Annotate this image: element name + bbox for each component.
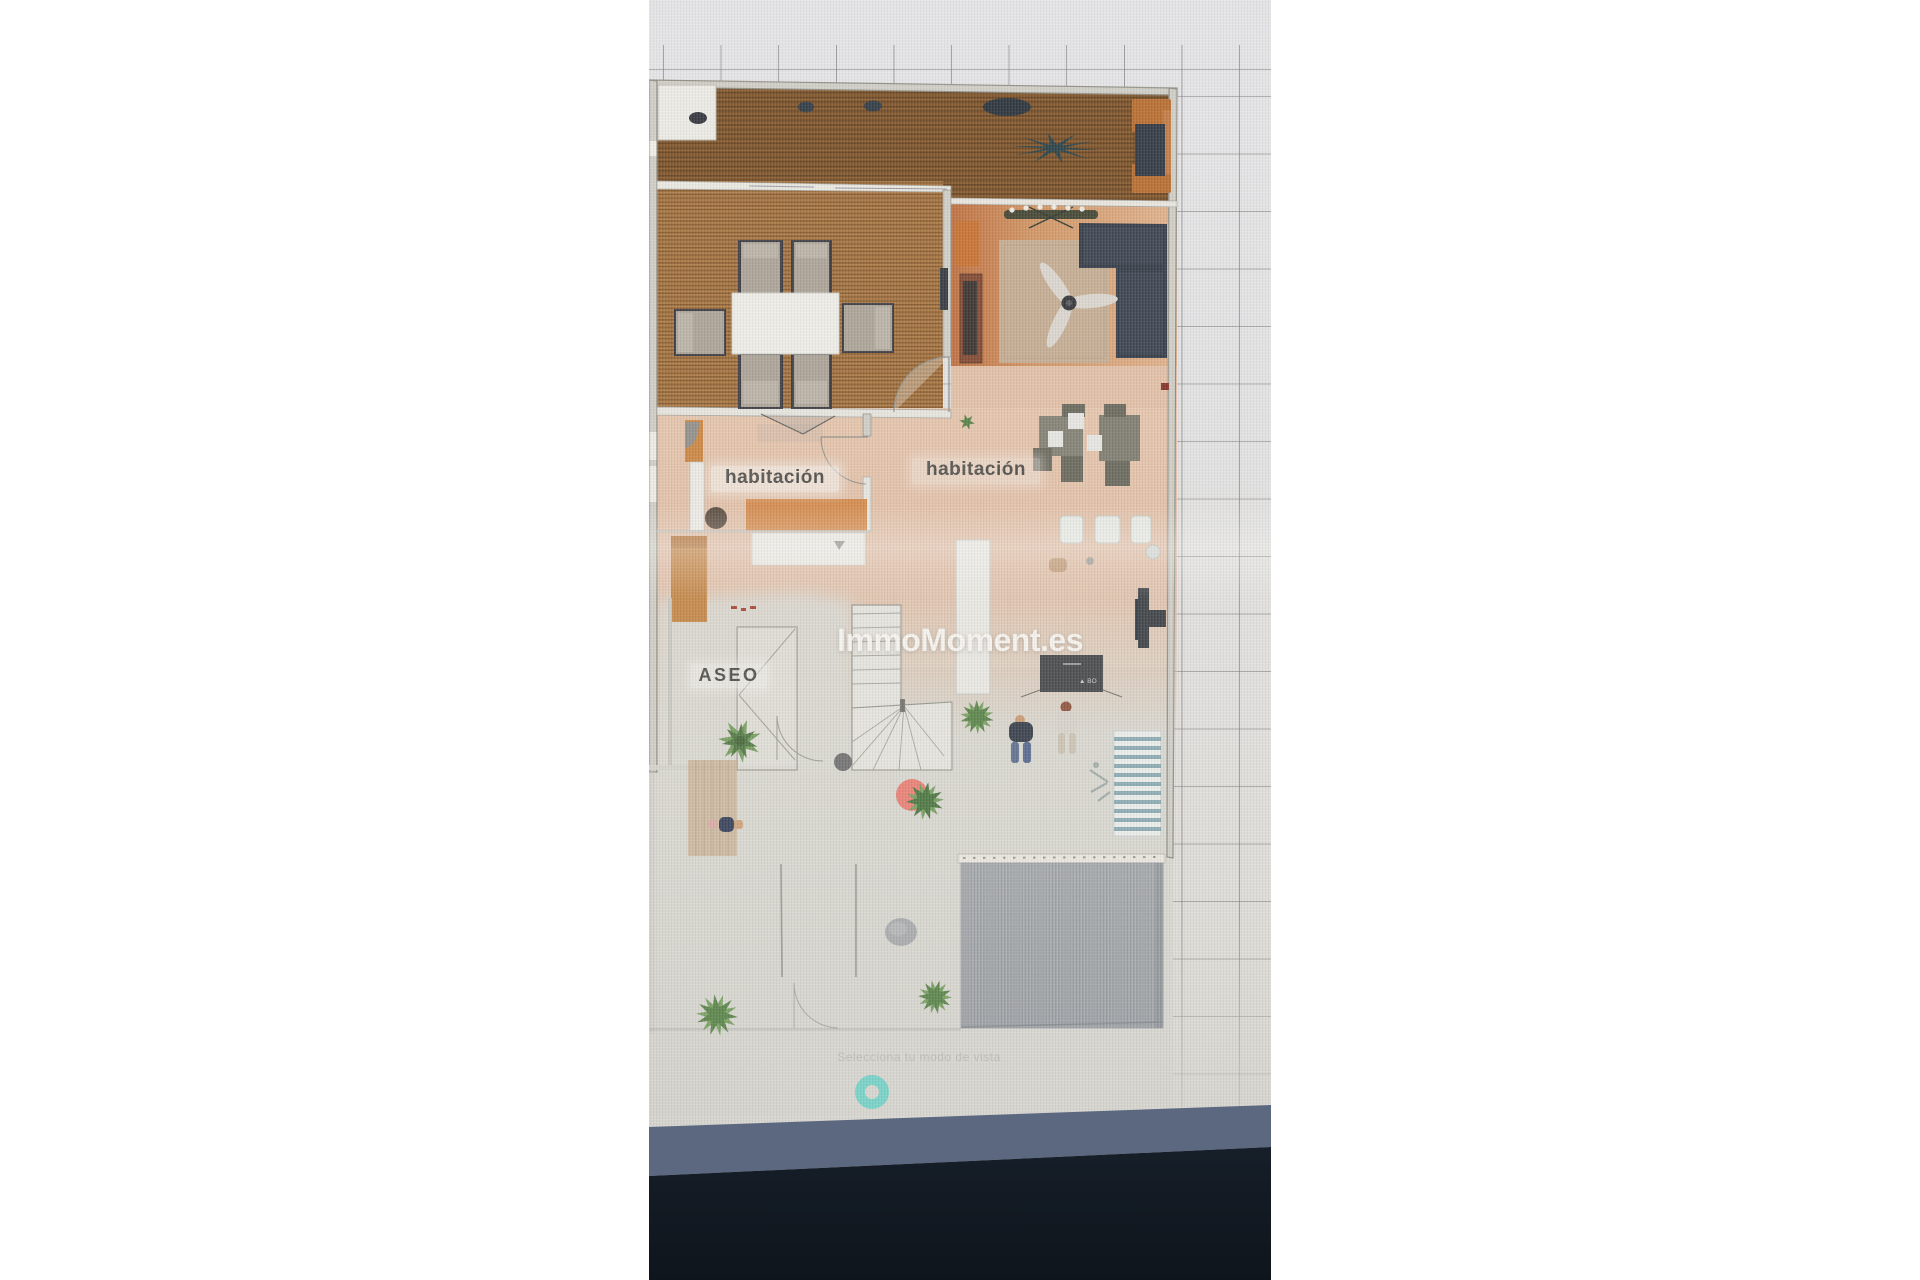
svg-text:▲ BO: ▲ BO xyxy=(1079,678,1097,685)
